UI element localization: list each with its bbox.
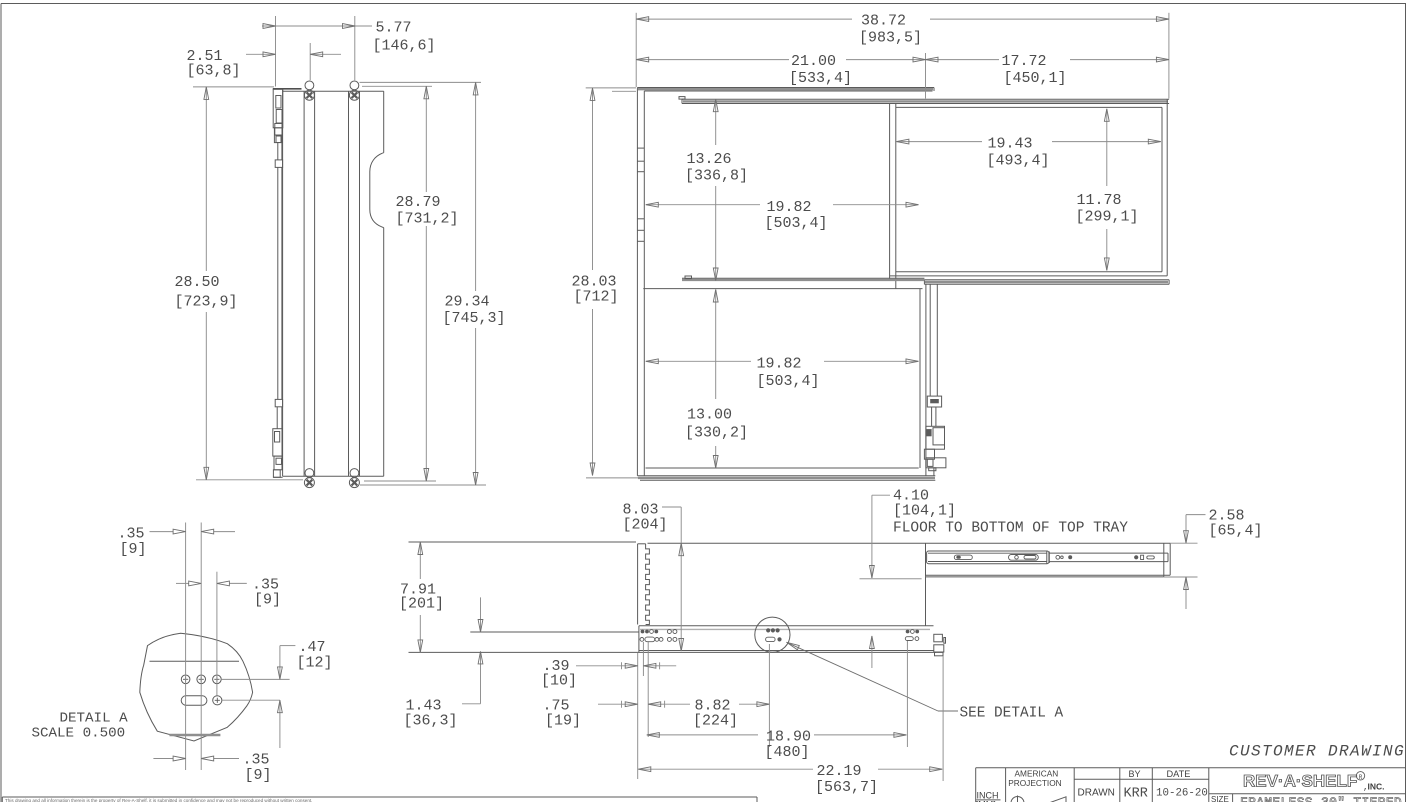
svg-text:[224]: [224] [693, 713, 738, 730]
svg-text:REV·A·SHELF: REV·A·SHELF [1243, 772, 1357, 791]
svg-text:17.72: 17.72 [1002, 53, 1047, 70]
svg-text:22.19: 22.19 [817, 763, 862, 780]
svg-text:19.82: 19.82 [767, 199, 812, 216]
svg-text:[712]: [712] [574, 289, 619, 306]
svg-text:DETAIL A: DETAIL A [60, 711, 129, 727]
svg-text:[503,4]: [503,4] [757, 373, 820, 390]
svg-text:[19]: [19] [545, 713, 581, 730]
svg-text:[563,7]: [563,7] [815, 779, 878, 796]
svg-text:11.78: 11.78 [1077, 192, 1122, 209]
svg-text:13.26: 13.26 [687, 151, 732, 168]
svg-text:[503,4]: [503,4] [765, 215, 828, 232]
svg-text:[299,1]: [299,1] [1076, 209, 1139, 226]
svg-text:10-26-20: 10-26-20 [1156, 788, 1208, 800]
svg-text:[450,1]: [450,1] [1004, 70, 1067, 87]
svg-text:19.43: 19.43 [988, 136, 1033, 153]
svg-text:SCALE 0.500: SCALE 0.500 [32, 726, 126, 742]
svg-text:[731,2]: [731,2] [396, 211, 459, 228]
svg-text:[493,4]: [493,4] [987, 153, 1050, 170]
svg-text:[12]: [12] [297, 655, 333, 672]
svg-text:.47: .47 [299, 639, 326, 656]
svg-text:PROJECTION: PROJECTION [1008, 778, 1061, 788]
svg-text:[63,8]: [63,8] [187, 63, 241, 80]
svg-text:[36,3]: [36,3] [404, 713, 458, 730]
svg-text:29.34: 29.34 [445, 294, 490, 311]
svg-text:38.72: 38.72 [861, 13, 906, 30]
svg-text:[9]: [9] [254, 592, 281, 609]
svg-text:[201]: [201] [399, 596, 444, 613]
svg-text:[723,9]: [723,9] [175, 294, 238, 311]
svg-text:[146,6]: [146,6] [373, 38, 436, 55]
svg-text:28.50: 28.50 [175, 274, 220, 291]
svg-text:FRAMELESS 30" TIERED: FRAMELESS 30" TIERED [1240, 795, 1402, 802]
svg-text:[983,5]: [983,5] [859, 30, 922, 47]
svg-text:[104,1]: [104,1] [893, 503, 956, 520]
svg-text:SIZE: SIZE [1211, 795, 1229, 802]
svg-text:FLOOR TO BOTTOM OF TOP TRAY: FLOOR TO BOTTOM OF TOP TRAY [893, 521, 1128, 537]
svg-text:[9]: [9] [120, 541, 147, 558]
svg-text:21.00: 21.00 [791, 53, 836, 70]
svg-text:[480]: [480] [765, 744, 810, 761]
svg-text:[204]: [204] [623, 517, 668, 534]
svg-text:18.90: 18.90 [766, 729, 811, 746]
svg-text:DATE: DATE [1167, 769, 1191, 779]
svg-text:.35: .35 [118, 526, 145, 543]
svg-text:DRAWN: DRAWN [1078, 788, 1115, 799]
svg-text:[533,4]: [533,4] [789, 70, 852, 87]
svg-text:.35: .35 [243, 752, 270, 769]
svg-text:INC.: INC. [1368, 782, 1385, 792]
svg-text:R: R [1359, 774, 1363, 781]
svg-text:SEE DETAIL A: SEE DETAIL A [960, 706, 1064, 722]
svg-text:[336,8]: [336,8] [685, 168, 748, 185]
svg-text:[745,3]: [745,3] [443, 310, 506, 327]
svg-text:BY: BY [1129, 769, 1141, 779]
svg-text:CUSTOMER DRAWING: CUSTOMER DRAWING [1229, 743, 1405, 761]
svg-text:[330,2]: [330,2] [685, 425, 748, 442]
svg-text:[10]: [10] [541, 673, 577, 690]
svg-text:28.79: 28.79 [396, 194, 441, 211]
svg-text:13.00: 13.00 [687, 407, 732, 424]
svg-text:KRR: KRR [1124, 787, 1148, 802]
svg-text:5.77: 5.77 [376, 20, 412, 37]
svg-text:This drawing and all informati: This drawing and all information therein… [5, 798, 312, 802]
svg-text:[65,4]: [65,4] [1209, 523, 1263, 540]
svg-text:19.82: 19.82 [757, 356, 802, 373]
svg-text:[9]: [9] [245, 767, 272, 784]
